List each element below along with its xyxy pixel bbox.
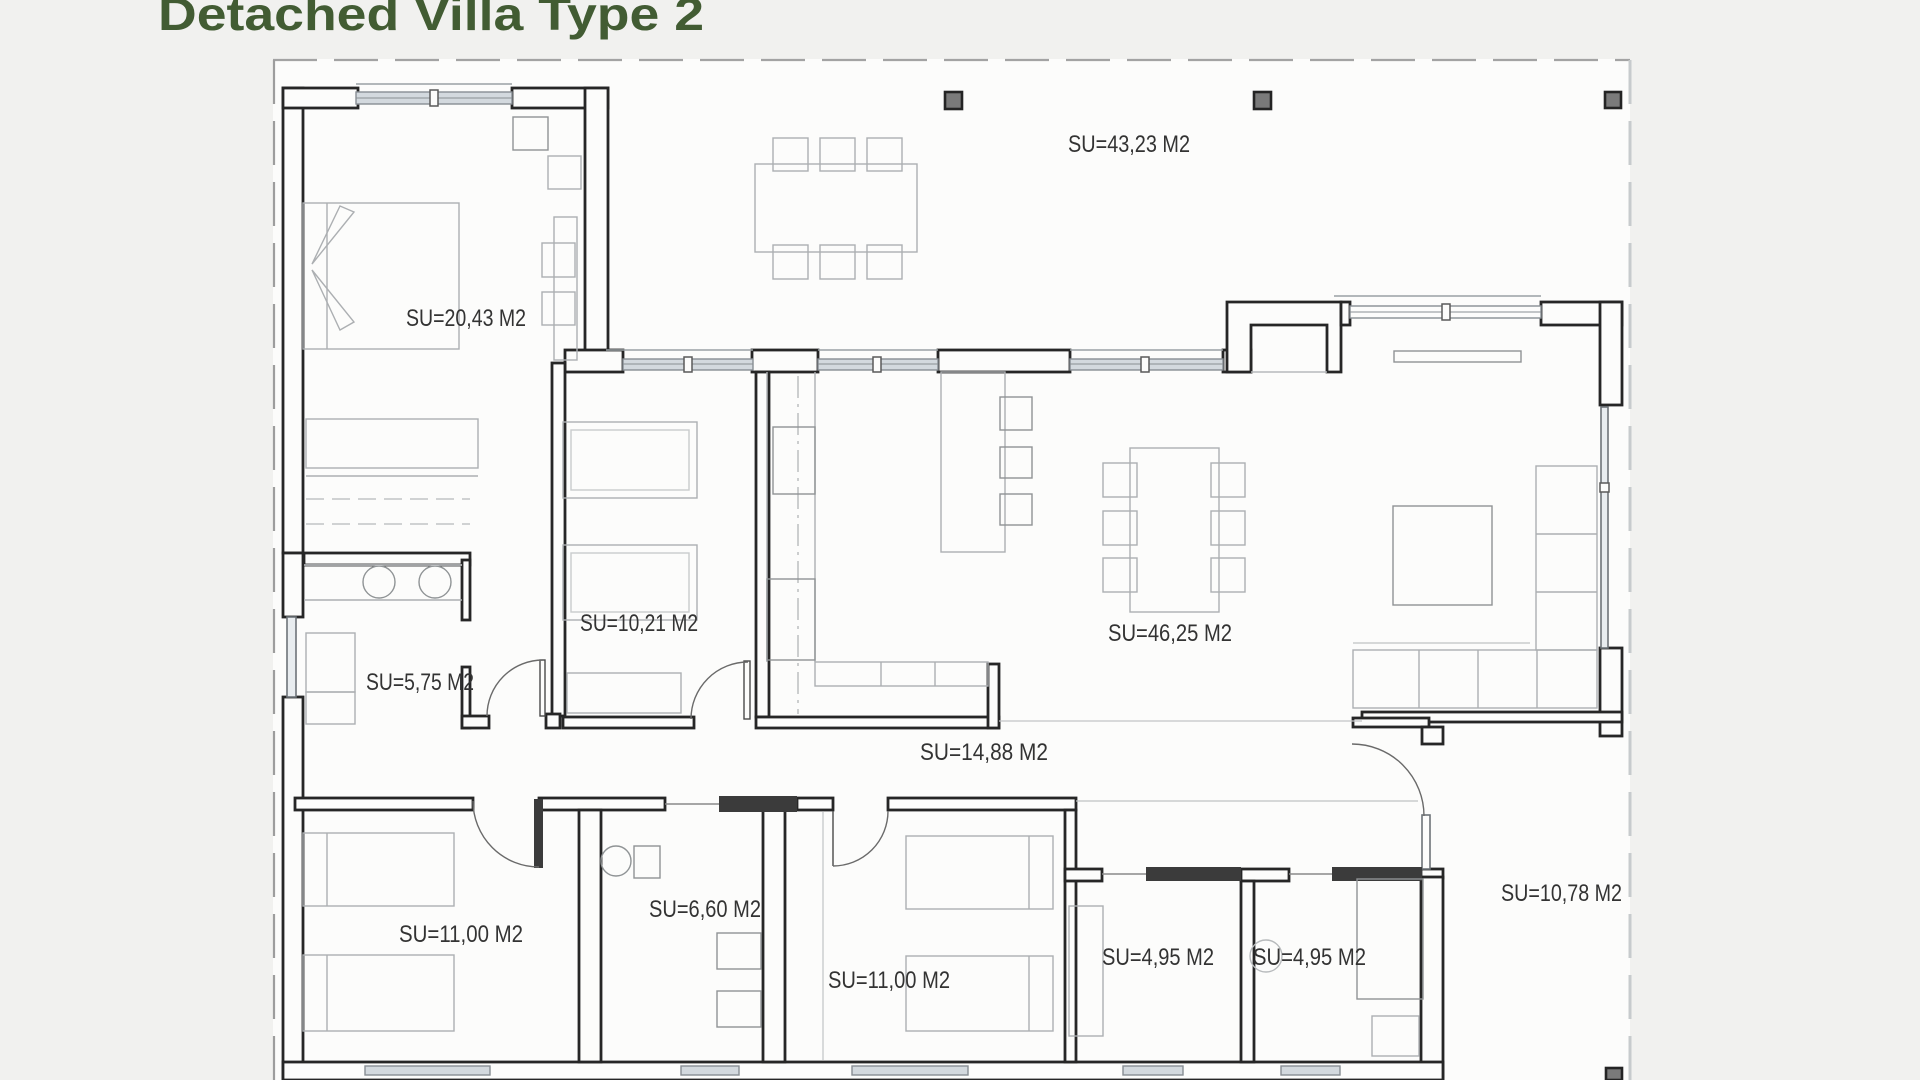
svg-text:SU=43,23 M2: SU=43,23 M2 xyxy=(1068,131,1190,158)
svg-text:Detached Villa Type 2: Detached Villa Type 2 xyxy=(158,0,704,40)
svg-text:SU=11,00 M2: SU=11,00 M2 xyxy=(828,967,950,994)
svg-text:SU=4,95 M2: SU=4,95 M2 xyxy=(1102,944,1214,971)
svg-text:SU=46,25 M2: SU=46,25 M2 xyxy=(1108,620,1232,647)
svg-text:SU=20,43 M2: SU=20,43 M2 xyxy=(406,305,526,332)
svg-text:SU=10,78 M2: SU=10,78 M2 xyxy=(1501,880,1622,907)
svg-text:SU=11,00 M2: SU=11,00 M2 xyxy=(399,921,523,948)
svg-text:SU=14,88 M2: SU=14,88 M2 xyxy=(920,739,1048,766)
svg-text:SU=5,75 M2: SU=5,75 M2 xyxy=(366,669,474,696)
svg-text:SU=4,95 M2: SU=4,95 M2 xyxy=(1253,944,1366,971)
svg-text:SU=10,21 M2: SU=10,21 M2 xyxy=(580,610,698,637)
svg-text:SU=6,60 M2: SU=6,60 M2 xyxy=(649,896,761,923)
